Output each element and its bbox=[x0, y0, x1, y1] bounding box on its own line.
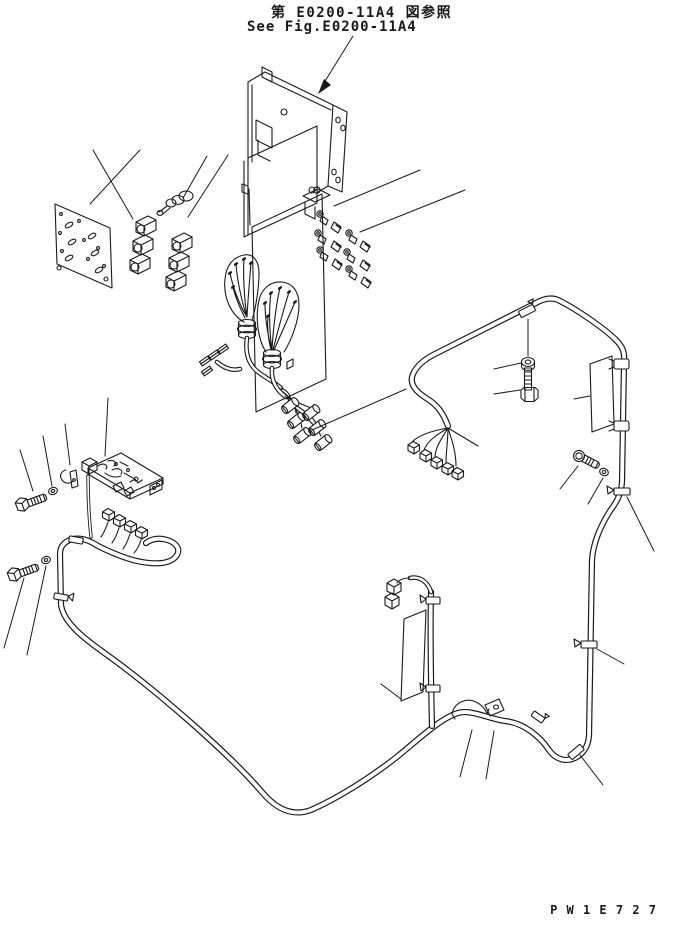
cable-clip-sweep bbox=[531, 708, 549, 725]
washer-right bbox=[588, 467, 610, 504]
bracket-washer bbox=[48, 486, 59, 496]
leader-lines-upper-left bbox=[90, 150, 228, 219]
mounting-plate bbox=[55, 204, 112, 288]
harness-terminal-fan bbox=[312, 389, 478, 480]
control-box-door bbox=[242, 126, 317, 237]
bracket-leader-lines bbox=[20, 398, 108, 491]
connector-block-stack-left bbox=[130, 216, 156, 274]
lower-bolt bbox=[4, 559, 40, 648]
parts-diagram-page: 第 E0200-11A4 図参照 See Fig.E0200-11A4 bbox=[0, 0, 683, 931]
harness-cables-center bbox=[217, 338, 321, 436]
connector-row bbox=[101, 509, 148, 554]
bracket-bolt bbox=[14, 489, 48, 513]
drawing-code: P W 1 E 7 2 7 bbox=[550, 903, 657, 917]
bottom-cable-connectors bbox=[385, 579, 401, 609]
reference-arrow bbox=[318, 36, 353, 94]
grommet-bushing bbox=[157, 191, 193, 215]
harness-clamp-top bbox=[516, 299, 538, 356]
wire-fan-right bbox=[257, 282, 299, 352]
screw-cluster-right bbox=[344, 190, 465, 288]
cable-clamp-lower bbox=[574, 639, 624, 664]
control-box bbox=[242, 67, 347, 237]
relay-bracket bbox=[82, 453, 163, 537]
panel-clip-lower bbox=[609, 421, 629, 431]
screw-cluster-left bbox=[315, 170, 420, 270]
parts-diagram-drawing bbox=[0, 0, 683, 931]
bolt-vertical bbox=[494, 368, 538, 402]
center-panel bbox=[249, 189, 326, 412]
bottom-panel bbox=[381, 610, 426, 701]
blade-terminals bbox=[199, 344, 228, 376]
lower-washer bbox=[27, 555, 51, 655]
bottom-vertical-cable bbox=[397, 578, 440, 726]
connector-block-stack-right bbox=[166, 233, 192, 291]
main-wiring-harness bbox=[60, 299, 624, 813]
p-clip bbox=[61, 470, 78, 488]
bolt-diagonal-right bbox=[560, 449, 601, 489]
cable-clamp-mid bbox=[607, 486, 654, 551]
